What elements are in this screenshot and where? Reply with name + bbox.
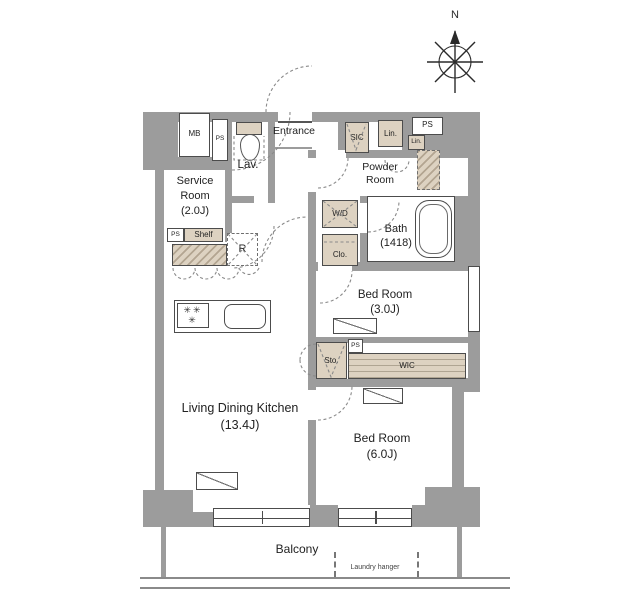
bedroom3-label: Bed Room (3.0J) xyxy=(345,288,425,318)
service-room-line1: Service xyxy=(160,174,230,189)
laundry-hanger-label: Laundry hanger xyxy=(336,564,414,572)
bed-icon-bedroom6 xyxy=(363,388,403,404)
powder-door-arc xyxy=(318,158,348,188)
entrance-step-line xyxy=(275,147,312,149)
compass-north-tip xyxy=(450,30,460,44)
pipe-shaft-wic: PS xyxy=(348,339,363,353)
bedroom3-window xyxy=(468,266,480,332)
walk-in-closet: WIC xyxy=(348,353,466,379)
pipe-shaft-lav-label: PS xyxy=(213,135,227,143)
washer-dryer: W/D xyxy=(322,200,358,228)
entry-door-arc xyxy=(266,66,312,112)
window-meeting-stile xyxy=(262,511,264,524)
service-room-size: (2.0J) xyxy=(160,204,230,219)
linen-label: Lin. xyxy=(379,129,402,139)
kitchen-sink xyxy=(224,304,266,329)
linen-closet: Lin. xyxy=(378,120,403,147)
wall-corner-bottom-left-ext xyxy=(193,512,213,527)
powder-vanity xyxy=(417,150,440,190)
bedroom3-name: Bed Room xyxy=(345,288,425,303)
wall-right-lower xyxy=(452,392,464,487)
ldk-name: Living Dining Kitchen xyxy=(160,400,320,417)
kitchen-upper-cabinet xyxy=(172,244,227,266)
window-meeting-stile xyxy=(375,511,377,524)
bath-size: (1418) xyxy=(368,236,424,250)
closet-clo: Clo. xyxy=(322,234,358,266)
bedroom6-size: (6.0J) xyxy=(342,446,422,462)
ldk-size: (13.4J) xyxy=(160,417,320,434)
refrigerator-label: R xyxy=(228,243,257,256)
bath-label: Bath (1418) xyxy=(368,222,424,250)
bedroom6-window xyxy=(338,508,412,527)
shelf-label: Shelf xyxy=(185,230,222,240)
pipe-shaft-lav: PS xyxy=(212,119,228,161)
wall-lav-bottom xyxy=(232,196,254,203)
linen-small-label: Lin. xyxy=(409,138,424,146)
service-room-line2: Room xyxy=(160,189,230,204)
storage-sto: Sto. xyxy=(316,342,347,379)
shelf: Shelf xyxy=(184,228,223,242)
pipe-shaft-shelf-label: PS xyxy=(168,231,183,239)
service-room-label: Service Room (2.0J) xyxy=(160,174,230,219)
floor-plan: MB PS SIC Lin. PS Lin. W/D Clo. PS Shelf… xyxy=(0,0,623,600)
bedroom6-name: Bed Room xyxy=(342,430,422,446)
compass-rose: N xyxy=(420,6,490,101)
entry-door-opening xyxy=(278,112,312,123)
bedroom6-door-arc xyxy=(318,386,352,420)
refrigerator-space: R xyxy=(227,233,258,266)
ground-line xyxy=(140,587,510,589)
bedroom6-label: Bed Room (6.0J) xyxy=(342,430,422,462)
pipe-shaft-top-right-label: PS xyxy=(413,120,442,130)
pipe-shaft-shelf: PS xyxy=(167,228,184,242)
bed-icon-bedroom3 xyxy=(333,318,377,334)
balcony-label: Balcony xyxy=(262,542,332,556)
powder-door-opening xyxy=(308,158,316,192)
wall-bottom-pier xyxy=(310,505,338,527)
laundry-hanger-mark-right xyxy=(417,552,419,577)
wall-corner-bottom-right xyxy=(425,487,480,527)
entrance-label: Entrance xyxy=(264,125,324,138)
linen-small: Lin. xyxy=(408,135,425,150)
stove: ✳✳ ✳ xyxy=(177,303,209,328)
wall-main-vertical xyxy=(308,150,316,505)
sic-label: SIC xyxy=(346,133,368,143)
wall-corner-bottom-left xyxy=(143,490,193,527)
walk-in-closet-label: WIC xyxy=(349,361,465,371)
hall-door-arc-2 xyxy=(262,217,307,262)
powder-room-line1: Powder xyxy=(346,161,414,174)
bedroom3-size: (3.0J) xyxy=(345,303,425,318)
balcony-wall-left xyxy=(161,527,166,578)
wall-bottom-right-seg xyxy=(412,505,425,527)
compass-north-label: N xyxy=(451,9,459,21)
wall-bath-right-filler xyxy=(455,196,468,262)
burner-icon-bottom: ✳ xyxy=(178,315,208,325)
burner-icons-top: ✳✳ xyxy=(178,305,208,315)
ldk-label: Living Dining Kitchen (13.4J) xyxy=(160,400,320,434)
powder-room-label: Powder Room xyxy=(346,161,414,187)
sic-closet: SIC xyxy=(345,122,369,153)
lav-label: Lav. xyxy=(228,159,268,173)
washer-dryer-label: W/D xyxy=(323,209,357,219)
powder-room-line2: Room xyxy=(346,174,414,187)
toilet-bowl xyxy=(240,134,260,161)
storage-sto-label: Sto. xyxy=(317,356,346,366)
balcony-wall-right xyxy=(457,527,462,578)
balcony-edge-line xyxy=(140,577,510,579)
ldk-window xyxy=(213,508,310,527)
pipe-shaft-top-right: PS xyxy=(412,117,443,135)
closet-clo-label: Clo. xyxy=(323,250,357,260)
meter-box: MB xyxy=(179,113,210,157)
cabinet-scallops xyxy=(173,268,259,279)
meter-box-label: MB xyxy=(180,129,209,139)
wall-wic-bed6 xyxy=(316,379,468,387)
bath-name: Bath xyxy=(368,222,424,236)
pipe-shaft-wic-label: PS xyxy=(349,342,362,350)
furniture-icon-ldk xyxy=(196,472,238,490)
